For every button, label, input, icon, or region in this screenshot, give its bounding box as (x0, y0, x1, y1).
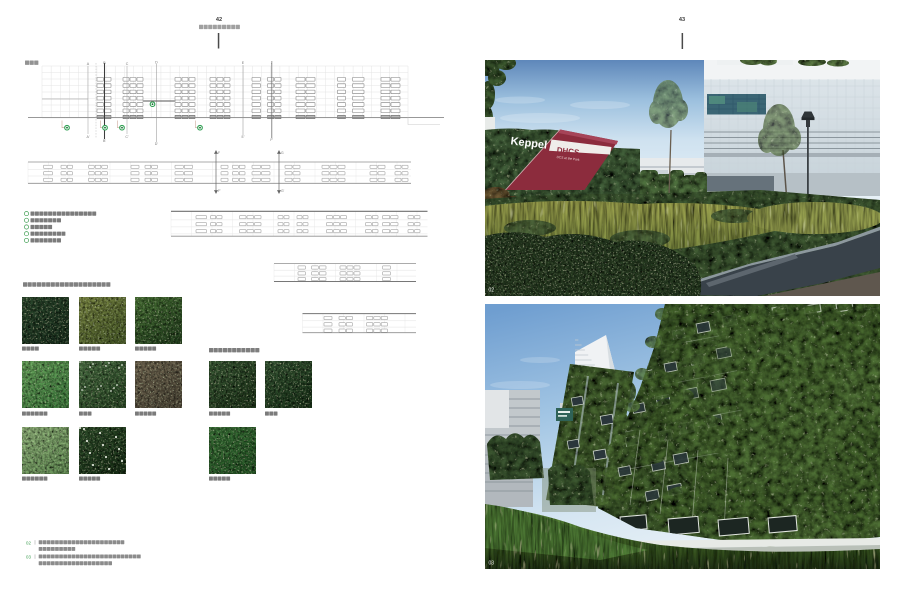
svg-text:C': C' (125, 135, 129, 139)
svg-text:B': B' (103, 139, 106, 143)
svg-text:A: A (87, 62, 90, 66)
svg-text:F: F (271, 61, 274, 65)
svg-text:F': F' (218, 189, 221, 193)
svg-text:F': F' (270, 138, 273, 142)
svg-text:42: 42 (216, 17, 222, 23)
svg-text:02: 02 (26, 540, 31, 545)
svg-text:C: C (126, 62, 129, 66)
svg-text:F: F (218, 151, 220, 155)
svg-text:D: D (155, 61, 158, 65)
svg-text:02: 02 (489, 288, 495, 294)
svg-text:B: B (103, 61, 106, 65)
svg-text:G': G' (281, 189, 285, 193)
svg-text:03: 03 (26, 555, 31, 560)
svg-text:43: 43 (679, 17, 685, 23)
svg-text:E: E (242, 61, 245, 65)
svg-text:A': A' (86, 135, 89, 139)
svg-text:03: 03 (489, 561, 495, 567)
svg-text:D': D' (155, 142, 159, 146)
svg-text:E': E' (241, 135, 244, 139)
svg-text:G: G (281, 151, 284, 155)
